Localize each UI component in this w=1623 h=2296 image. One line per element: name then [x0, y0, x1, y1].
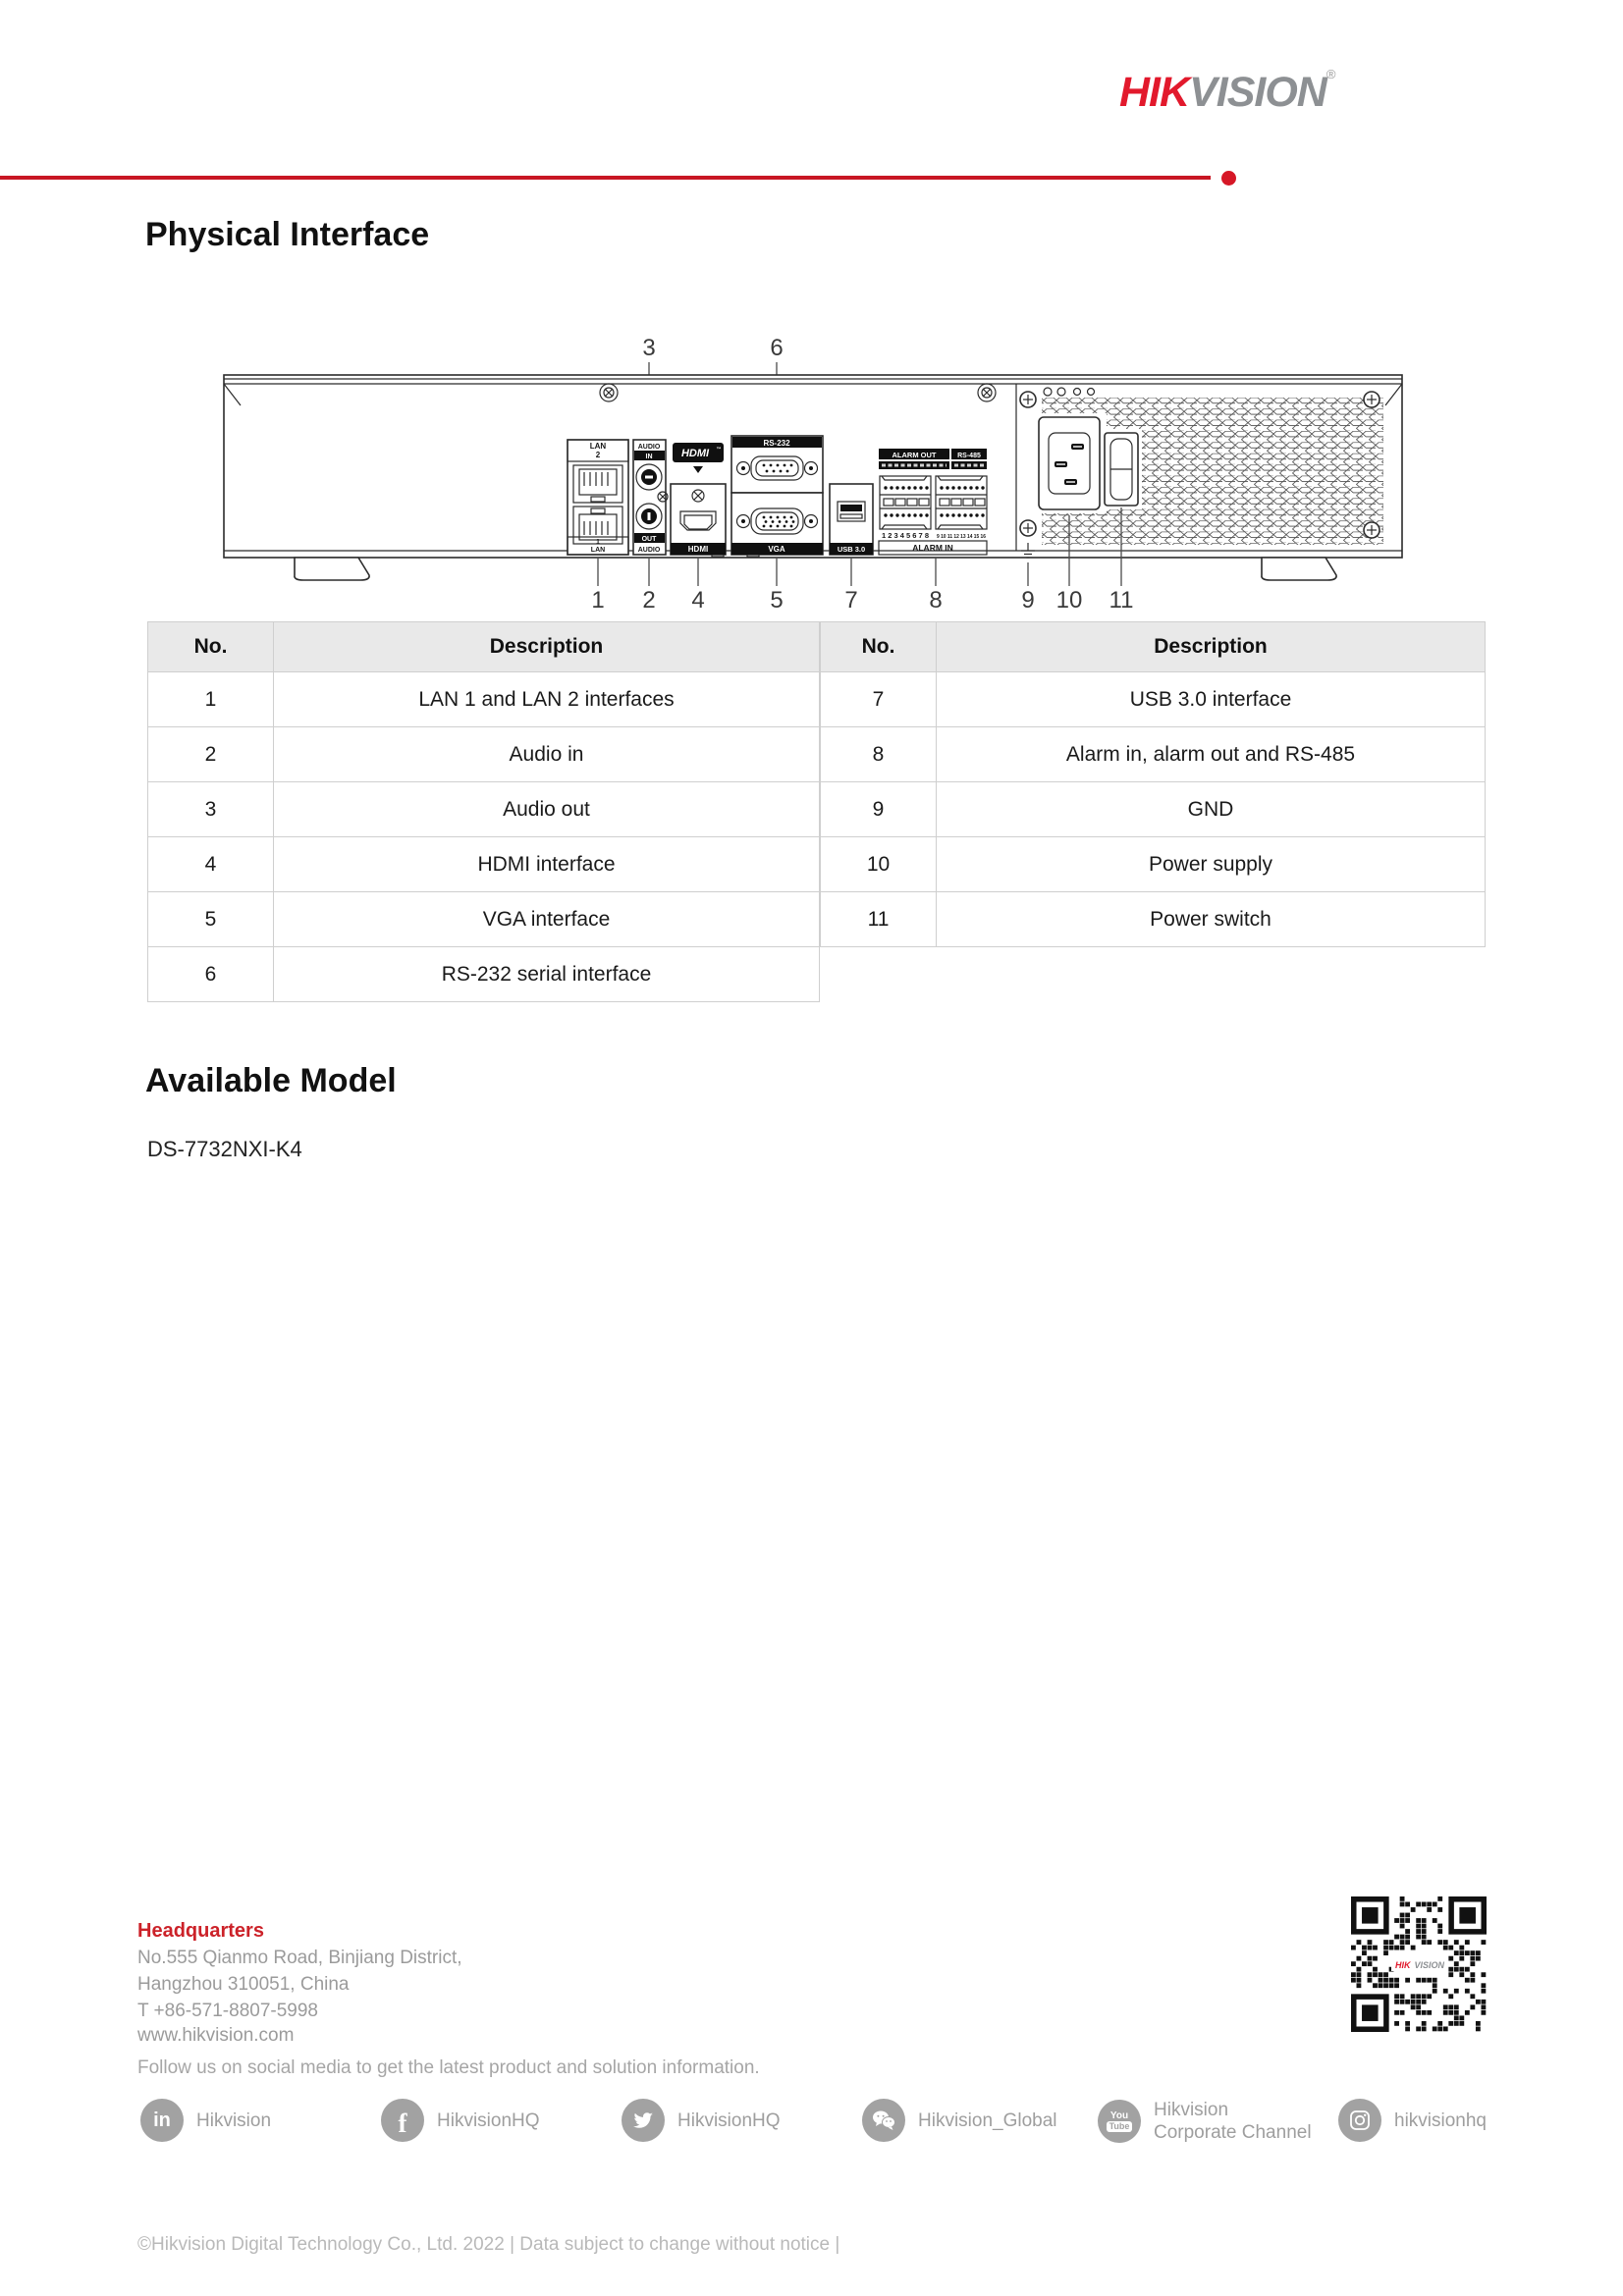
hdmi-logo-label: HDMI	[681, 448, 710, 459]
power-switch	[1101, 429, 1142, 509]
facebook-icon: f	[381, 2099, 424, 2142]
col-header-no: No.	[821, 622, 937, 672]
audio-in-label: IN	[646, 454, 653, 460]
usb-port: USB 3.0	[830, 484, 873, 555]
callout-6: 6	[770, 335, 783, 361]
table-row: 1LAN 1 and LAN 2 interfaces	[148, 672, 820, 727]
youtube-icon: YouTube	[1098, 2100, 1141, 2143]
usb-label: USB 3.0	[838, 545, 865, 554]
callout-11: 11	[1109, 587, 1134, 614]
social-label: hikvisionhq	[1394, 2109, 1487, 2132]
hikvision-logo: HIKVISION®	[1119, 67, 1334, 117]
col-header-no: No.	[148, 622, 274, 672]
social-linkedin[interactable]: in Hikvision	[140, 2099, 271, 2142]
callout-4: 4	[691, 587, 704, 614]
callout-10: 10	[1056, 587, 1083, 614]
lan-label-top: LAN	[590, 442, 607, 451]
callout-5: 5	[770, 587, 783, 614]
callout-3: 3	[642, 335, 655, 361]
table-row: 11Power switch	[821, 892, 1486, 947]
social-label: Hikvision_Global	[918, 2109, 1057, 2132]
svg-text:™: ™	[717, 447, 722, 453]
callout-8: 8	[929, 587, 942, 614]
power-section	[1016, 384, 1383, 558]
table-row: 10Power supply	[821, 837, 1486, 892]
wechat-icon	[862, 2099, 905, 2142]
vga-label: VGA	[768, 545, 785, 554]
screw-icon	[1364, 522, 1380, 538]
table-row: 8Alarm in, alarm out and RS-485	[821, 727, 1486, 782]
hdmi-bar-label: HDMI	[688, 545, 708, 554]
follow-us-text: Follow us on social media to get the lat…	[137, 2057, 760, 2079]
red-divider-line	[0, 176, 1211, 180]
audio-out-label: OUT	[642, 536, 658, 543]
svg-text:2: 2	[596, 451, 601, 459]
table-row: 7USB 3.0 interface	[821, 672, 1486, 727]
interface-table-left: No. Description 1LAN 1 and LAN 2 interfa…	[147, 621, 820, 1002]
col-header-description: Description	[274, 622, 820, 672]
svg-text:AUDIO: AUDIO	[638, 547, 661, 554]
hq-address-line2: Hangzhou 310051, China	[137, 1974, 350, 1996]
terminal-numbers-left: 1 2 3 4 5 6 7 8	[882, 533, 929, 540]
alarm-in-label: ALARM IN	[912, 543, 953, 553]
rs232-label: RS-232	[763, 439, 790, 448]
rear-panel-diagram: 3 6	[201, 319, 1419, 614]
social-twitter[interactable]: HikvisionHQ	[622, 2099, 781, 2142]
interface-table-right: No. Description 7USB 3.0 interface 8Alar…	[820, 621, 1486, 947]
rs485-label: RS-485	[957, 453, 981, 459]
table-row: 3Audio out	[148, 782, 820, 837]
callout-7: 7	[844, 587, 857, 614]
social-label: Hikvision	[196, 2109, 271, 2132]
social-wechat[interactable]: Hikvision_Global	[862, 2099, 1057, 2142]
qr-code	[1347, 1893, 1492, 2038]
rs232-port: RS-232	[731, 436, 823, 493]
logo-hik: HIK	[1119, 69, 1189, 116]
table-row: 4HDMI interface	[148, 837, 820, 892]
callout-9: 9	[1021, 587, 1034, 614]
social-youtube[interactable]: YouTube HikvisionCorporate Channel	[1098, 2099, 1312, 2144]
red-divider-dot	[1221, 171, 1236, 186]
callout-2: 2	[642, 587, 655, 614]
table-row: 9GND	[821, 782, 1486, 837]
hq-phone: T +86-571-8807-5998	[137, 2001, 318, 2022]
svg-text:LAN: LAN	[591, 547, 605, 554]
audio-ports: AUDIO IN OUT AUDIO	[633, 440, 668, 555]
social-label: HikvisionCorporate Channel	[1154, 2099, 1312, 2144]
table-header-row: No. Description	[821, 622, 1486, 672]
social-label: HikvisionHQ	[437, 2109, 540, 2132]
datasheet-page: HIKVISION® Physical Interface 3 6	[0, 0, 1623, 2296]
hq-address-line1: No.555 Qianmo Road, Binjiang District,	[137, 1948, 462, 1969]
twitter-icon	[622, 2099, 665, 2142]
hdmi-port: HDMI ™ HDMI	[671, 443, 726, 555]
social-instagram[interactable]: hikvisionhq	[1338, 2099, 1487, 2142]
power-inlet	[1032, 413, 1107, 513]
interface-description-tables: No. Description 1LAN 1 and LAN 2 interfa…	[147, 621, 1486, 1002]
screw-icon	[1364, 392, 1380, 407]
social-label: HikvisionHQ	[677, 2109, 781, 2132]
linkedin-icon: in	[140, 2099, 184, 2142]
col-header-description: Description	[937, 622, 1486, 672]
table-header-row: No. Description	[148, 622, 820, 672]
lan-ports: LAN 2 1 LAN	[568, 440, 628, 555]
vga-port: VGA	[731, 493, 823, 555]
terminal-numbers-right: 9 10 11 12 13 14 15 16	[937, 534, 986, 540]
callout-1: 1	[591, 587, 604, 614]
model-number: DS-7732NXI-K4	[147, 1137, 302, 1162]
social-media-row: in Hikvision f HikvisionHQ HikvisionHQ	[0, 2099, 1623, 2154]
table-row: 5VGA interface	[148, 892, 820, 947]
social-facebook[interactable]: f HikvisionHQ	[381, 2099, 540, 2142]
audio-label-top: AUDIO	[638, 444, 661, 451]
section-title-physical-interface: Physical Interface	[145, 216, 429, 254]
headquarters-title: Headquarters	[137, 1920, 264, 1943]
alarm-out-label: ALARM OUT	[893, 451, 937, 459]
instagram-icon	[1338, 2099, 1381, 2142]
table-row: 6RS-232 serial interface	[148, 947, 820, 1002]
section-title-available-model: Available Model	[145, 1062, 397, 1100]
chassis-foot-right	[1262, 558, 1336, 580]
chassis-foot-left	[295, 558, 369, 580]
logo-vision: VISION	[1189, 69, 1326, 116]
hq-website-link[interactable]: www.hikvision.com	[137, 2025, 294, 2047]
screw-icon	[1020, 392, 1036, 407]
table-row: 2Audio in	[148, 727, 820, 782]
lan-label-bottom: 1	[596, 539, 600, 546]
copyright-line: ©Hikvision Digital Technology Co., Ltd. …	[137, 2234, 839, 2256]
registered-mark: ®	[1326, 67, 1335, 81]
